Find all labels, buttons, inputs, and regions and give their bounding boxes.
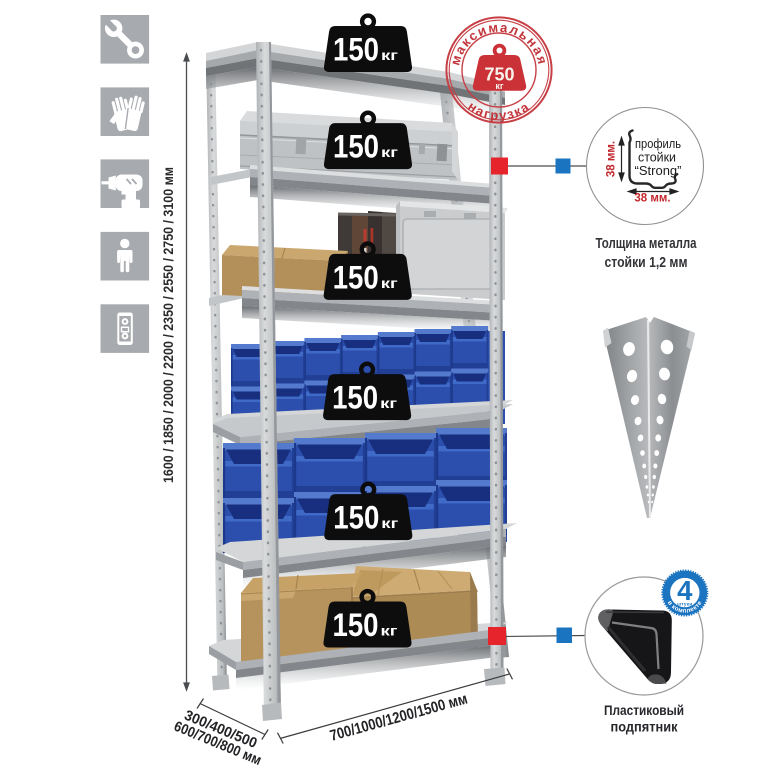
svg-text:Пластиковый: Пластиковый — [604, 702, 684, 718]
svg-text:подпятник: подпятник — [611, 719, 679, 735]
svg-text:кг: кг — [495, 81, 504, 91]
svg-text:штуки: штуки — [677, 601, 692, 606]
svg-text:1600 / 1850 / 2000 / 2200 / 23: 1600 / 1850 / 2000 / 2200 / 2350 / 2550 … — [161, 167, 176, 483]
svg-text:38 мм.: 38 мм. — [634, 193, 670, 205]
svg-text:38 мм.: 38 мм. — [606, 141, 618, 177]
svg-text:Толщина металла: Толщина металла — [596, 236, 698, 252]
svg-text:стойки 1,2 мм: стойки 1,2 мм — [605, 255, 688, 271]
svg-text:“Strong”: “Strong” — [635, 163, 682, 178]
